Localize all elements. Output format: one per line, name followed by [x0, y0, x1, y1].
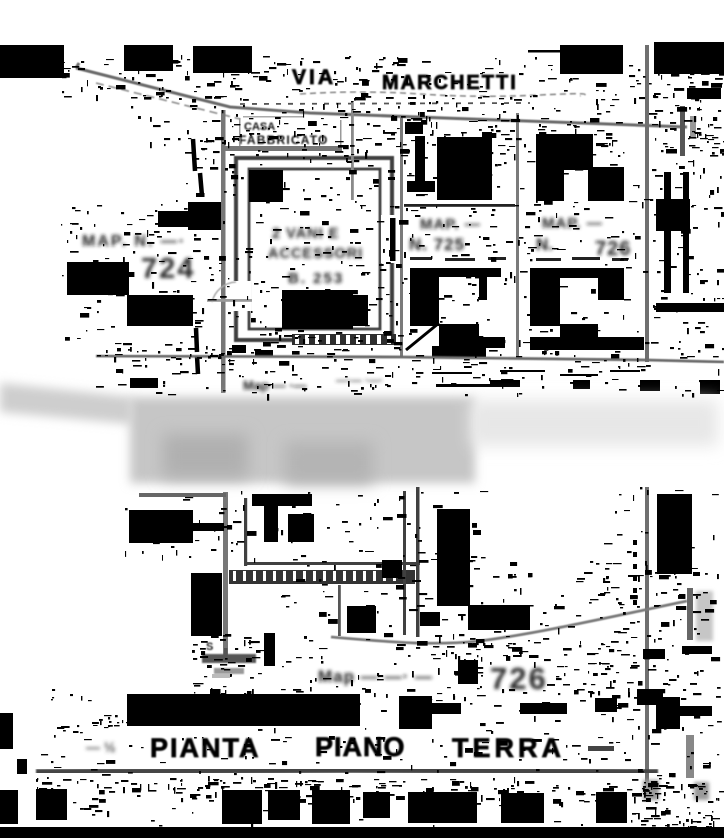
- svg-text:VIA: VIA: [292, 66, 336, 89]
- svg-text:Map — —· —: Map — —· —: [318, 667, 433, 686]
- svg-text:MAP. —: MAP. —: [420, 216, 481, 233]
- svg-text:MAP. N. —·: MAP. N. —·: [82, 233, 186, 250]
- svg-text:PIANO: PIANO: [315, 732, 406, 762]
- svg-text:Map — ·—: Map — ·—: [243, 378, 307, 393]
- svg-text:N.: N.: [536, 235, 553, 254]
- svg-text:726: 726: [595, 238, 631, 260]
- svg-text:FABBRICATO: FABBRICATO: [239, 133, 329, 147]
- svg-text:B. 253: B. 253: [288, 270, 344, 287]
- svg-text:N. 725: N. 725: [409, 235, 465, 254]
- svg-text:MARCHETTI: MARCHETTI: [382, 72, 518, 94]
- svg-text:— ½: — ½: [86, 739, 116, 755]
- svg-text:MAP. —: MAP. —: [542, 215, 603, 232]
- svg-text:726: 726: [490, 661, 548, 696]
- svg-text:PIANTA: PIANTA: [150, 733, 261, 763]
- svg-text:724: 724: [141, 253, 195, 285]
